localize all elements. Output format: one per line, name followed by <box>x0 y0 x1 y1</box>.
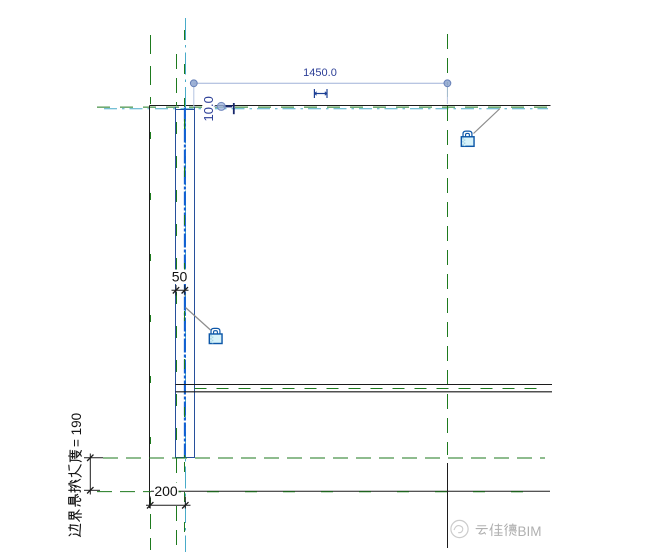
svg-text:200: 200 <box>154 483 178 499</box>
svg-text:10.0: 10.0 <box>201 96 216 121</box>
svg-text:50: 50 <box>172 269 188 285</box>
svg-text:= 190: = 190 <box>69 413 84 447</box>
svg-text:BIM: BIM <box>518 524 542 539</box>
svg-text:1450.0: 1450.0 <box>303 67 337 79</box>
